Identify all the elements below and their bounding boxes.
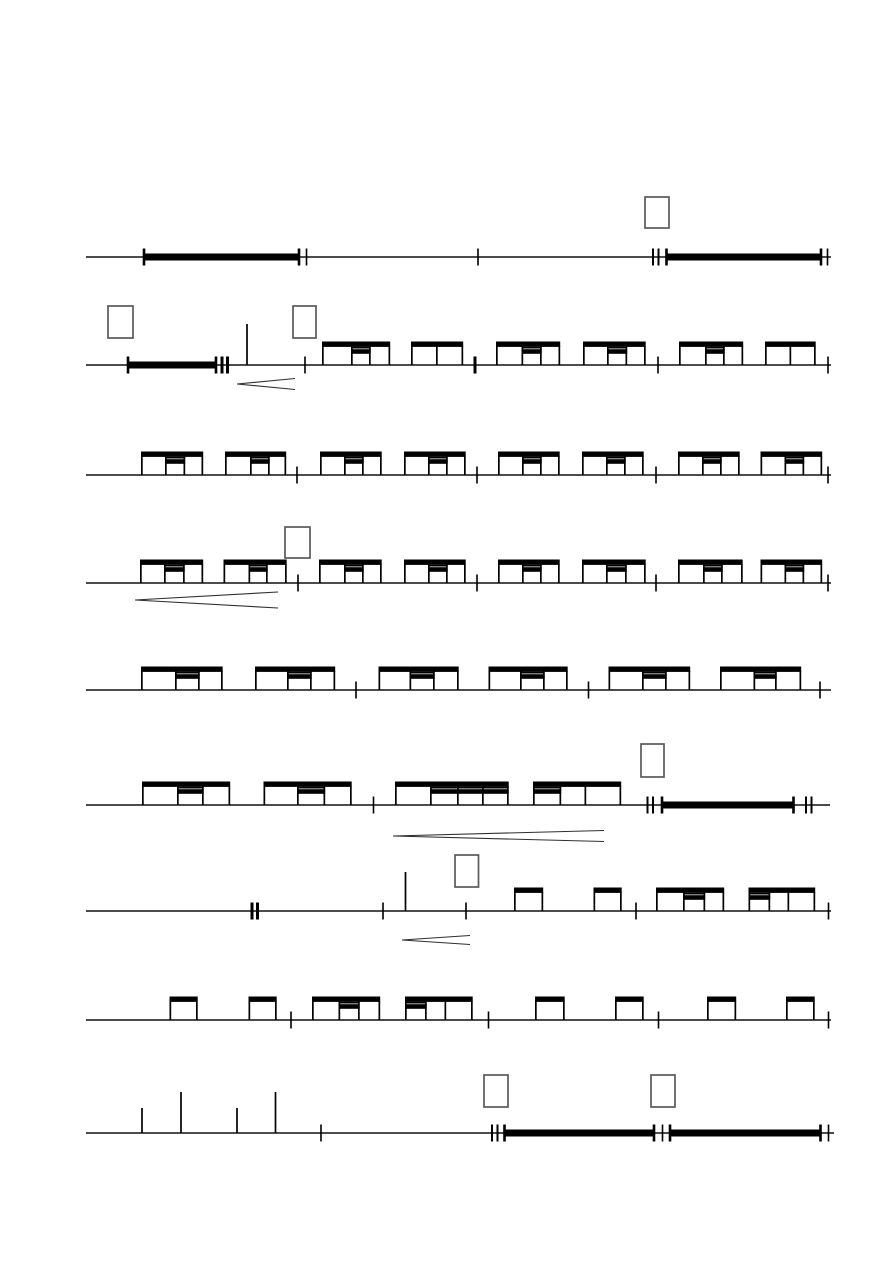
duration-bar-end-tick [792,797,795,814]
note-stem [344,564,346,583]
beamed-note-group [533,782,621,806]
beamed-note-group [582,452,644,476]
beamed-note-group [322,342,390,366]
beam [678,560,743,565]
note-stem [425,1001,427,1020]
secondary-beam-line [297,787,325,789]
note-stem [324,786,326,805]
barline [297,575,299,592]
beam [249,997,277,1002]
beamed-note-group [594,888,622,912]
note-stem [800,671,802,690]
note-stem [198,671,200,690]
barline [488,1012,490,1029]
note-stem [411,346,413,365]
note-stem [246,324,248,365]
note-stem [464,456,466,475]
secondary-beam [175,674,200,679]
note-stem [644,346,646,365]
note-stem [404,564,406,583]
note-stem [665,671,667,690]
barline [477,249,479,266]
note-stem [405,1001,407,1020]
note-stem [522,456,524,475]
note-stem [625,564,627,583]
beamed-note-group [404,452,466,476]
beam [320,452,382,457]
secondary-beam [249,567,268,572]
note-stem [164,564,166,583]
secondary-beam [606,459,626,464]
note-stem [721,564,723,583]
secondary-beam [607,349,627,354]
note-stem [535,1001,537,1020]
beam [255,667,335,672]
beamed-note-group [765,342,816,366]
secondary-beam-line [642,672,667,674]
note-stem [225,456,227,475]
note-stem [735,1001,737,1020]
beam [225,452,286,457]
secondary-beam-line [405,1002,427,1004]
hairpin-line [237,379,295,385]
beamed-note-group [141,667,223,691]
barline [304,357,306,374]
note-stem [583,346,585,365]
note-stem [723,892,725,911]
beamed-note-group [761,452,823,476]
note-stem [498,456,500,475]
beam [720,667,801,672]
beam [514,888,543,893]
note-stem [678,456,680,475]
note-stem [558,564,560,583]
hairpin-line [237,384,295,390]
double-tick-line [491,1125,493,1142]
secondary-beam-line [430,787,509,789]
note-stem [720,456,722,475]
staff-system [86,997,831,1029]
beam [535,997,565,1002]
instruction-box [645,197,669,228]
secondary-beam-line [410,672,435,674]
note-stem [559,346,561,365]
double-tick-line [652,797,654,814]
hairpin-line [135,592,278,600]
beam [224,560,287,565]
note-stem [297,786,299,805]
double-tick-line [811,797,813,814]
beam [583,342,646,347]
beamed-note-group [405,997,473,1021]
beamed-note-group [656,888,724,912]
note-stem [790,346,792,365]
beam [141,667,223,672]
tick-mark [306,249,308,266]
beam [141,452,203,457]
tick-mark [828,1125,830,1142]
beam [322,342,390,347]
note-stem [702,456,704,475]
tick-mark [662,1125,664,1142]
duration-bar-end-tick [653,1125,656,1142]
note-stem [496,346,498,365]
note-stem [626,346,628,365]
beam [404,452,466,457]
double-tick-line [658,249,660,266]
note-stem [788,892,790,911]
double-tick-line [221,357,224,374]
beamed-note-group [404,560,466,584]
note-stem [769,892,771,911]
note-stem [379,1001,381,1020]
beamed-note-group [141,452,203,476]
secondary-beam [533,789,561,794]
duration-bar-start-tick [143,249,146,266]
beam [609,667,691,672]
note-stem [380,456,382,475]
beamed-note-group [707,997,736,1021]
note-stem [344,456,346,475]
double-tick-line [497,1125,499,1142]
note-stem [362,456,364,475]
note-stem [705,346,707,365]
duration-bar [665,249,822,266]
barline [373,797,375,814]
beamed-note-group [312,997,380,1021]
secondary-beam-line [177,787,204,789]
duration-bar [127,357,218,374]
duration-bar-body [505,1130,655,1137]
note-stem [522,346,524,365]
note-stem [498,564,500,583]
note-stem [436,346,438,365]
crescendo-hairpin [237,379,295,390]
note-stem [620,892,622,911]
beamed-note-group [224,560,287,584]
note-stem [339,1001,341,1020]
note-stem [410,671,412,690]
secondary-beam [339,1004,360,1009]
note-stem [142,786,144,805]
note-stem [320,456,322,475]
beamed-note-group [498,560,560,584]
beam [496,342,560,347]
duration-bar-start-tick [665,249,668,266]
barline [588,682,590,699]
instruction-box [108,306,133,338]
note-stem [533,786,535,805]
beam [786,997,815,1002]
staff-system [86,667,831,699]
instruction-box [293,306,316,338]
beamed-note-group [255,667,335,691]
staff-line [86,1019,831,1020]
note-stem [679,346,681,365]
barline [296,467,298,484]
tick-mark [828,1012,830,1029]
instruction-box [484,1075,508,1107]
note-stem [457,786,459,805]
secondary-beam-line [250,457,270,459]
note-stem [379,671,381,690]
note-stem [720,671,722,690]
secondary-beam [164,567,185,572]
secondary-beam-line [175,672,200,674]
staff-system [86,855,831,945]
double-tick-line [251,903,254,920]
note-stem [202,456,204,475]
crescendo-hairpin [393,831,604,842]
beam [489,667,568,672]
note-stem [446,564,448,583]
barline [655,575,657,592]
tick-mark [819,682,821,699]
note-stem [642,1001,644,1020]
staff-line [86,910,831,911]
secondary-beam-line [702,457,722,459]
double-tick-line [226,357,229,374]
note-stem [202,564,204,583]
beamed-note-group [489,667,568,691]
secondary-beam [250,459,270,464]
note-stem [540,564,542,583]
duration-bar-body [662,802,794,809]
note-stem [255,671,257,690]
note-stem [221,671,223,690]
beamed-note-group [514,888,543,912]
secondary-beam [785,459,805,464]
duration-bar [669,1125,822,1142]
beamed-note-group [249,997,277,1021]
note-stem [250,456,252,475]
note-stem [236,1108,238,1133]
secondary-beam-line [339,1002,360,1004]
duration-bar-body [128,362,216,369]
note-stem [738,456,740,475]
beam [656,888,724,893]
note-stem [514,892,516,911]
hairpin-line [135,600,278,608]
beamed-note-group [225,452,286,476]
beam [379,667,459,672]
duration-bar-end-tick [819,1125,822,1142]
beam [498,560,560,565]
note-stem [607,346,609,365]
note-stem [563,1001,565,1020]
beam [761,452,823,457]
note-stem [507,786,509,805]
beam [140,560,203,565]
note-stem [433,671,435,690]
beamed-note-group [678,452,740,476]
note-stem [814,892,816,911]
duration-bar-end-tick [298,249,301,266]
note-stem [624,456,626,475]
note-stem [821,456,823,475]
beamed-note-group [786,997,815,1021]
secondary-beam [522,567,542,572]
staff-system [86,197,831,266]
barline [355,682,357,699]
note-stem [224,564,226,583]
note-stem [457,671,459,690]
note-stem [264,786,266,805]
note-stem [445,1001,447,1020]
duration-bar-start-tick [669,1125,672,1142]
secondary-beam-line [749,893,771,895]
hairpin-line [402,936,470,941]
staff-system [86,452,831,484]
note-stem [184,456,186,475]
crescendo-hairpin [402,936,470,945]
note-stem [362,564,364,583]
beamed-note-group [720,667,801,691]
beamed-note-group [395,782,509,806]
note-stem [275,1001,277,1020]
beam [615,997,644,1002]
note-stem [428,564,430,583]
secondary-beam-line [249,565,268,567]
beamed-note-group [609,667,691,691]
note-stem [742,346,744,365]
beamed-note-group [582,560,646,584]
beam [582,560,646,565]
duration-bar [503,1125,655,1142]
note-stem [582,564,584,583]
note-stem [141,671,143,690]
secondary-beam [428,459,448,464]
beamed-note-group [583,342,646,366]
beamed-note-group [379,667,459,691]
beam [707,997,736,1002]
tick-mark [827,575,829,592]
score-page [0,0,893,1263]
beamed-note-group [761,560,823,584]
note-stem [405,872,407,911]
secondary-beam [297,789,325,794]
barline [635,903,637,920]
note-stem [202,786,204,805]
note-stem [312,1001,314,1020]
note-stem [704,892,706,911]
double-tick-line [256,903,259,920]
secondary-beam-line [785,565,805,567]
beam [749,888,816,893]
note-stem [765,346,767,365]
duration-bar-end-tick [215,357,218,374]
note-stem [380,564,382,583]
secondary-beam-line [754,672,777,674]
note-stem [140,564,142,583]
barline [290,1012,292,1029]
note-stem [522,564,524,583]
note-stem [678,564,680,583]
note-stem [482,786,484,805]
secondary-beam-line [428,565,448,567]
note-stem [656,892,658,911]
note-stem [540,346,542,365]
instruction-box [455,855,479,887]
note-stem [229,786,231,805]
note-stem [464,564,466,583]
beam [395,782,509,787]
secondary-beam [344,459,364,464]
note-stem [249,564,251,583]
note-stem [560,786,562,805]
secondary-beam [344,567,364,572]
note-stem [741,564,743,583]
secondary-beam [703,567,723,572]
barline [474,357,477,374]
secondary-beam-line [344,457,364,459]
secondary-beam-line [522,347,542,349]
secondary-beam-line [606,457,626,459]
note-stem [196,1001,198,1020]
note-stem [543,671,545,690]
beamed-note-group [498,452,560,476]
duration-bar-start-tick [503,1125,506,1142]
beamed-note-group [535,997,565,1021]
secondary-beam [606,567,627,572]
note-stem [582,456,584,475]
tick-mark [828,903,830,920]
hairpin-line [393,836,604,842]
note-stem [395,786,397,805]
secondary-beam-line [606,565,627,567]
beamed-note-group [496,342,560,366]
duration-bar-end-tick [820,249,823,266]
note-stem [249,1001,251,1020]
barline [657,357,659,374]
secondary-beam [287,674,312,679]
secondary-beam [785,567,805,572]
staff-system [86,1075,834,1142]
instruction-box [651,1075,675,1107]
note-stem [606,456,608,475]
double-tick-line [805,797,807,814]
secondary-beam [749,895,771,900]
note-stem [683,892,685,911]
beamed-note-group [319,560,382,584]
beamed-note-group [749,888,816,912]
staff-system [86,744,830,842]
duration-bar-body [144,254,299,261]
staff-line [86,582,831,583]
score-canvas [0,0,893,1263]
staff-system [86,527,831,608]
note-stem [558,456,560,475]
beam [264,782,352,787]
beamed-note-group [170,997,198,1021]
note-stem [351,346,353,365]
secondary-beam-line [428,457,448,459]
secondary-beam [405,1004,427,1009]
note-stem [644,564,646,583]
secondary-beam [410,674,435,679]
secondary-beam-line [703,565,723,567]
note-stem [520,671,522,690]
note-stem [786,1001,788,1020]
note-stem [165,456,167,475]
note-stem [310,671,312,690]
note-stem [141,1108,143,1133]
note-stem [462,346,464,365]
beam [498,452,560,457]
note-stem [542,892,544,911]
secondary-beam-line [287,672,312,674]
note-stem [471,1001,473,1020]
